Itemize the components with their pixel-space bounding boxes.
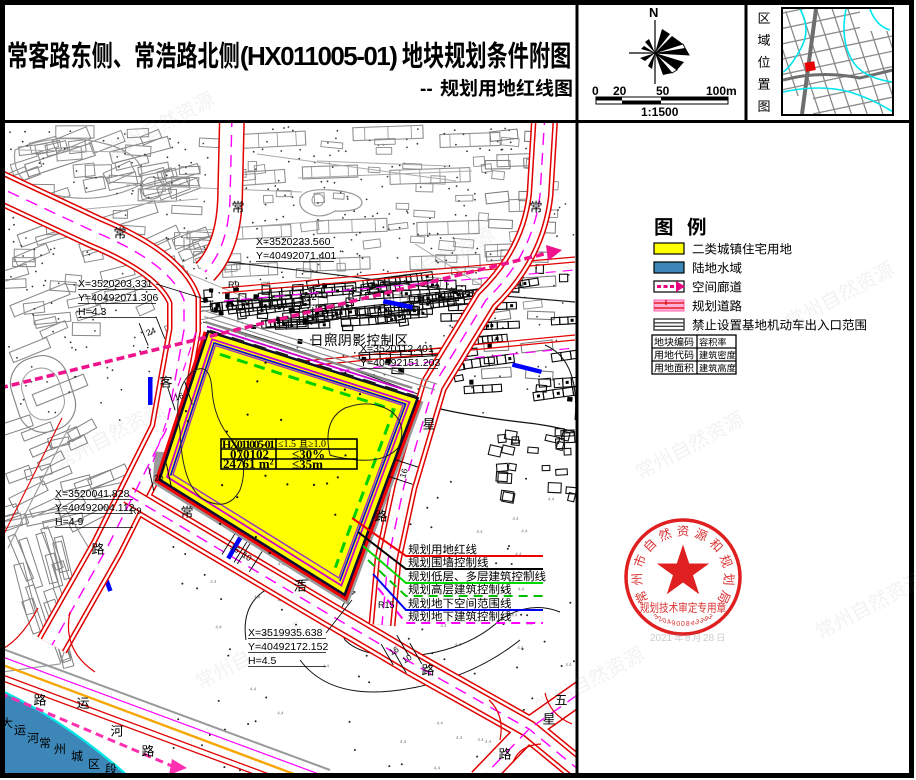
svg-text:4.4: 4.4 xyxy=(521,529,528,534)
svg-text:R15: R15 xyxy=(378,600,395,610)
svg-text:0: 0 xyxy=(592,84,599,98)
svg-text:4.4: 4.4 xyxy=(277,710,284,715)
svg-text:4.4: 4.4 xyxy=(437,721,444,726)
svg-text:N: N xyxy=(649,5,658,20)
svg-text:0: 0 xyxy=(681,621,685,628)
svg-text:R12: R12 xyxy=(300,292,317,302)
svg-text:H=4.3: H=4.3 xyxy=(78,306,106,318)
svg-text:4.4: 4.4 xyxy=(400,739,407,744)
svg-text:(HX011005-01): (HX011005-01) xyxy=(240,41,398,71)
svg-text:≤35m: ≤35m xyxy=(292,457,323,472)
svg-text:28: 28 xyxy=(703,633,715,644)
svg-text:4.4: 4.4 xyxy=(456,735,463,740)
svg-text:4.4: 4.4 xyxy=(485,739,492,744)
svg-text:R9: R9 xyxy=(130,506,142,516)
svg-text:20: 20 xyxy=(613,84,627,98)
svg-text:4.4: 4.4 xyxy=(477,737,484,742)
svg-text:4.4: 4.4 xyxy=(518,587,525,592)
svg-text:X=3520112.401: X=3520112.401 xyxy=(360,343,434,355)
svg-text:4.4: 4.4 xyxy=(565,662,572,667)
svg-text:100m: 100m xyxy=(706,84,737,98)
svg-text:X=3520233.560: X=3520233.560 xyxy=(256,236,331,248)
svg-text:R9: R9 xyxy=(228,280,240,290)
svg-text:H=4.9: H=4.9 xyxy=(55,516,83,528)
svg-text:50: 50 xyxy=(656,84,670,98)
svg-text:8: 8 xyxy=(685,633,691,644)
svg-text:Y=40492151.203: Y=40492151.203 xyxy=(360,357,440,369)
svg-text:4.4: 4.4 xyxy=(250,687,257,692)
svg-text:4.4: 4.4 xyxy=(512,516,519,521)
svg-text:4.4: 4.4 xyxy=(215,624,222,629)
svg-text:1:1500: 1:1500 xyxy=(641,105,679,119)
svg-text:4.4: 4.4 xyxy=(548,497,555,502)
svg-text:4.4: 4.4 xyxy=(517,645,524,650)
svg-text:4.4: 4.4 xyxy=(210,579,217,584)
svg-text:4.4: 4.4 xyxy=(476,529,483,534)
svg-text:X=3520041.828: X=3520041.828 xyxy=(55,488,130,500)
svg-text:4.4: 4.4 xyxy=(434,765,441,770)
svg-text:X=3520203.331: X=3520203.331 xyxy=(78,278,153,290)
svg-text:Y=40492071.306: Y=40492071.306 xyxy=(78,292,158,304)
svg-text:2021: 2021 xyxy=(650,633,673,644)
svg-text:Y=40492004.112: Y=40492004.112 xyxy=(55,502,135,514)
svg-text:0: 0 xyxy=(676,621,681,628)
svg-text:Y=40492071.401: Y=40492071.401 xyxy=(256,250,336,262)
svg-text:--: -- xyxy=(420,79,433,100)
svg-text:24761 m²: 24761 m² xyxy=(223,456,274,471)
